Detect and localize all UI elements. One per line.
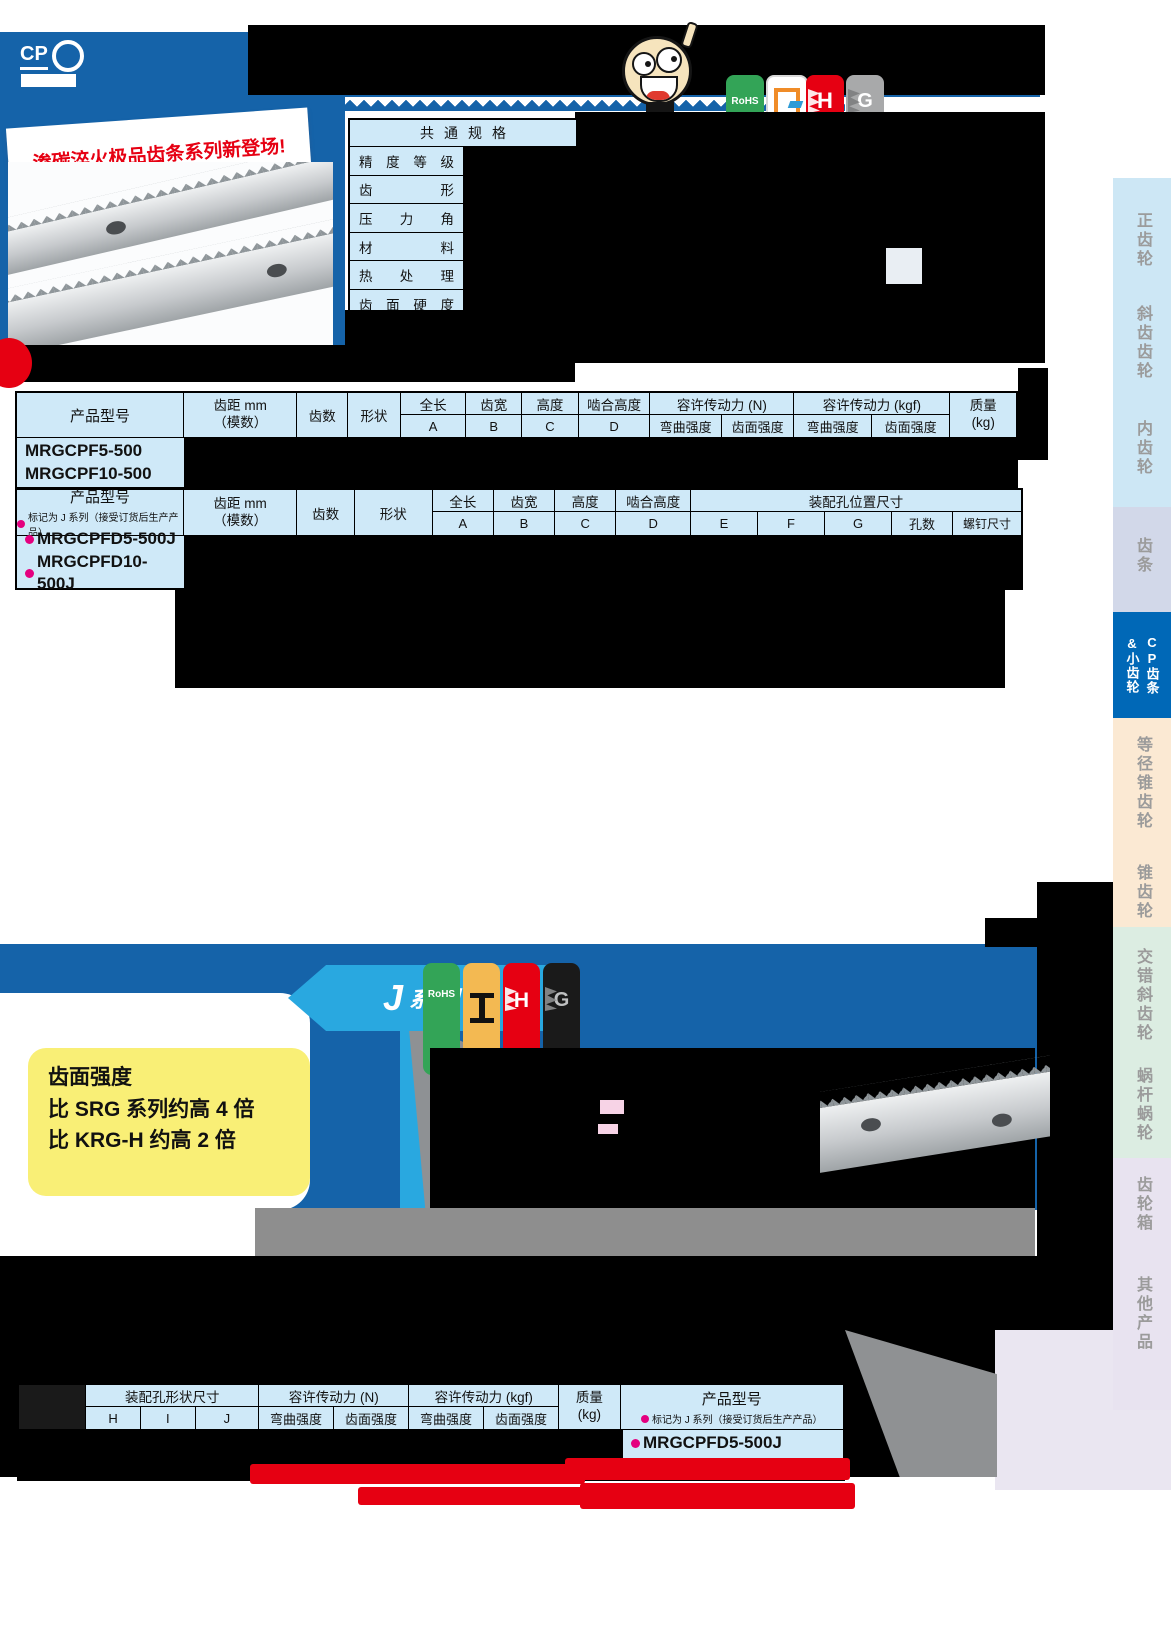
sidebar-item-gearboxes[interactable]: 齿轮箱 <box>1113 1168 1171 1240</box>
product-model: MRGCPFD10-500J <box>37 551 184 597</box>
spec-label-accuracy: 精度等级 <box>350 147 464 175</box>
col-mass: 质量(kg) <box>950 393 1016 437</box>
col-height-c: 高度C <box>522 393 579 437</box>
redacted-table-data <box>185 536 1021 588</box>
product-cell: MRGCPF5-500 MRGCPF10-500 <box>17 438 185 487</box>
mascot-eye <box>632 52 656 76</box>
col-height-c: 高度C <box>555 490 617 535</box>
redacted-red-text <box>358 1487 600 1505</box>
redacted-block <box>1018 368 1048 460</box>
redacted-spec-value <box>464 261 576 289</box>
col-total-length-a: 全长A <box>401 393 467 437</box>
col-product: 产品型号 标记为 J 系列（接受订货后生产产品） <box>621 1385 843 1429</box>
product-cell: MRGCPFD5-500J MRGCPFD10-500J <box>17 536 185 588</box>
sidebar-item-other-products[interactable]: 其他产品 <box>1113 1262 1171 1366</box>
col-teeth: 齿数 <box>297 393 348 437</box>
col-mesh-height-d: 啮合高度D <box>616 490 691 535</box>
redacted-block <box>985 918 1037 947</box>
redacted-table-data <box>185 438 1016 487</box>
sidebar-item-helical-gears[interactable]: 斜齿齿轮 <box>1113 288 1171 398</box>
rack-product-photo <box>8 162 333 345</box>
redacted-spec-value <box>464 204 576 232</box>
col-mounting-holes: 装配孔位置尺寸 E F G 孔数 螺钉尺寸 <box>691 490 1021 535</box>
pink-detail-mark <box>600 1100 624 1114</box>
redacted-drawing-block <box>575 112 1045 363</box>
col-mount-shape: 装配孔形状尺寸 H I J <box>86 1385 259 1429</box>
product-model: MRGCPF5-500 <box>25 440 184 463</box>
sidebar-item-cp-racks-pinions[interactable]: CP齿条 &小齿轮 <box>1113 616 1171 714</box>
mascot-arm <box>680 21 698 49</box>
drawing-detail-square <box>886 248 922 284</box>
sidebar-item-internal-gears[interactable]: 内齿轮 <box>1113 402 1171 494</box>
col-force-kgf: 容许传动力 (kgf)弯曲强度齿面强度 <box>409 1385 559 1429</box>
redacted-spec-value <box>464 233 576 261</box>
redacted-red-text <box>580 1483 855 1509</box>
col-teeth: 齿数 <box>297 490 355 535</box>
sidebar-item-worm-gears[interactable]: 蜗杆蜗轮 <box>1113 1052 1171 1158</box>
col-pitch: 齿距 mm（模数） <box>184 393 297 437</box>
col-mesh-height-d: 啮合高度D <box>579 393 651 437</box>
spec-label-material: 材料 <box>350 233 464 261</box>
j-rack-product-photo <box>820 1055 1050 1205</box>
sidebar-item-screw-gears[interactable]: 交错斜齿轮 <box>1113 936 1171 1054</box>
col-shape: 形状 <box>348 393 401 437</box>
redacted-spec-value <box>464 147 576 175</box>
sidebar-item-bevel-gears[interactable]: 锥齿轮 <box>1113 846 1171 938</box>
col-face-width-b: 齿宽B <box>494 490 555 535</box>
col-mass: 质量(kg) <box>559 1385 620 1429</box>
redacted-block <box>10 345 345 382</box>
sidebar-item-racks[interactable]: 齿条 <box>1113 522 1171 590</box>
catalog-page: CP RoHS H G 渗碳淬火极品齿条系列新登场! <box>0 0 1171 1642</box>
j-series-dot-icon <box>641 1415 649 1423</box>
j-series-dot-icon <box>25 535 34 544</box>
j-series-dot-icon <box>25 569 34 578</box>
product-model: MRGCPFD5-500J <box>643 1432 782 1455</box>
col-shape: 形状 <box>355 490 433 535</box>
sidebar-item-miter-gears[interactable]: 等径锥齿轮 <box>1113 722 1171 844</box>
col-force-n: 容许传动力 (N)弯曲强度齿面强度 <box>650 393 794 437</box>
redacted-spec-value <box>464 176 576 204</box>
redacted-red-text <box>565 1458 850 1480</box>
col-pitch: 齿距 mm（模数） <box>184 490 297 535</box>
cp-logo-text: CP <box>20 43 48 70</box>
cpf-rack-table: 产品型号 齿距 mm（模数） 齿数 形状 全长A 齿宽B 高度C 啮合高度D 容… <box>15 391 1018 489</box>
gray-band <box>255 1208 1035 1256</box>
highlight-line: 比 SRG 系列约高 4 倍 <box>48 1094 310 1126</box>
rack-bar-icon <box>21 74 76 87</box>
highlight-line: 齿面强度 <box>48 1062 310 1094</box>
pinion-circle-icon <box>52 40 84 72</box>
product-model: MRGCPF10-500 <box>25 463 184 486</box>
cpfd-rack-table: 产品型号 标记为 J 系列（接受订货后生产产品） 齿距 mm（模数） 齿数 形状… <box>15 488 1023 590</box>
j-series-dot-icon <box>17 520 25 528</box>
spec-label-tooth-profile: 齿形 <box>350 176 464 204</box>
col-force-n: 容许传动力 (N)弯曲强度齿面强度 <box>259 1385 409 1429</box>
j-series-label: J <box>383 977 403 1019</box>
strength-highlight-box: 齿面强度 比 SRG 系列约高 4 倍 比 KRG-H 约高 2 倍 <box>28 1048 310 1196</box>
spec-label-pressure-angle: 压力角 <box>350 204 464 232</box>
spec-label-heat-treatment: 热处理 <box>350 261 464 289</box>
redacted-block <box>345 310 575 382</box>
highlight-line: 比 KRG-H 约高 2 倍 <box>48 1125 310 1157</box>
col-total-length-a: 全长A <box>433 490 495 535</box>
cp-rack-pinion-logo: CP <box>13 32 83 97</box>
redacted-header-cell <box>19 1385 86 1429</box>
common-spec-table: 共通规格 精度等级 齿形 压力角 材料 热处理 齿面硬度 <box>348 118 578 320</box>
j-series-dot-icon <box>631 1439 640 1448</box>
common-spec-title: 共通规格 <box>350 120 576 147</box>
sidebar-item-spur-gears[interactable]: 正齿轮 <box>1113 195 1171 285</box>
mascot-eye <box>656 47 682 73</box>
product-model: MRGCPFD5-500J <box>37 528 176 551</box>
col-product: 产品型号 <box>17 393 184 437</box>
pink-detail-mark <box>598 1124 618 1134</box>
redacted-red-text <box>250 1464 585 1484</box>
col-force-kgf: 容许传动力 (kgf)弯曲强度齿面强度 <box>794 393 950 437</box>
col-face-width-b: 齿宽B <box>466 393 522 437</box>
